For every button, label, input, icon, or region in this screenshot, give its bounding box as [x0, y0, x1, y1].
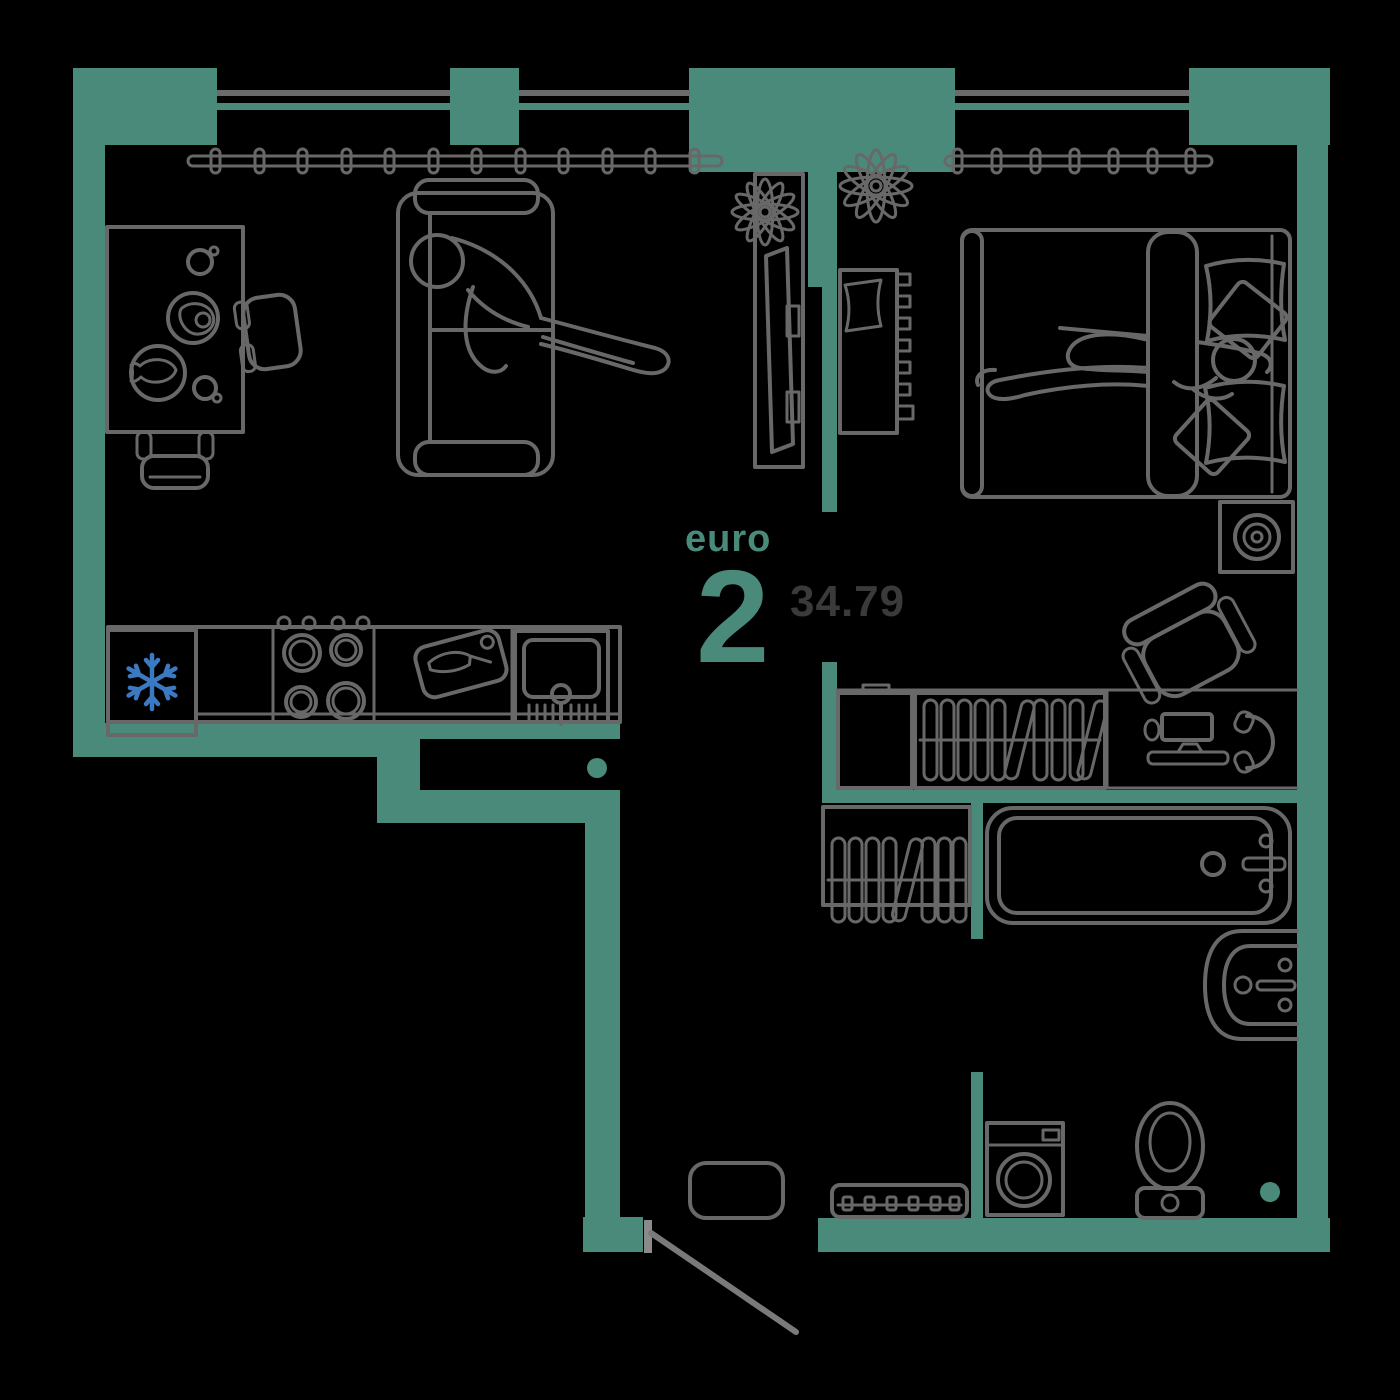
headphones-icon — [1233, 710, 1273, 775]
headboard — [962, 231, 982, 496]
kitchen — [108, 617, 620, 735]
pillow-icon — [1207, 279, 1289, 360]
book-icon — [845, 280, 881, 331]
snowflake-icon — [126, 655, 179, 709]
bedroom — [837, 150, 1297, 788]
plate-icon — [131, 346, 185, 400]
stove-icon — [278, 617, 369, 719]
toilet-icon — [1137, 1103, 1203, 1218]
drain-icon — [1235, 977, 1251, 993]
person-icon — [977, 328, 1271, 399]
shoe-bench-icon — [832, 1185, 967, 1217]
bathtub-icon — [987, 808, 1290, 923]
rug-icon — [690, 1163, 783, 1218]
washing-machine-icon — [987, 1123, 1063, 1215]
window — [955, 90, 1189, 96]
curtain-rod-living — [188, 149, 722, 173]
plan-labels: euro 2 34.79 — [685, 518, 905, 690]
plant-icon — [732, 179, 798, 245]
knife-icon — [427, 643, 490, 677]
closet-icon — [838, 685, 912, 788]
window-frame — [217, 103, 450, 110]
radiator-shelf-icon — [840, 270, 913, 433]
drain-icon — [1202, 853, 1224, 875]
curtain-hooks — [953, 149, 1195, 173]
shaft-column-dot — [587, 758, 607, 778]
pillow-icon — [1172, 397, 1251, 476]
window-frame — [519, 103, 690, 110]
cutting-board-icon — [413, 627, 510, 699]
faucet-icon — [1243, 858, 1285, 870]
faucet-icon — [552, 685, 570, 703]
curtain-rod-bedroom — [945, 149, 1212, 173]
dining-table-icon — [107, 227, 243, 432]
window-frame — [955, 103, 1189, 110]
chair-icon — [137, 432, 213, 488]
washbasin-icon — [1205, 931, 1297, 1039]
floor-plan: euro 2 34.79 — [0, 0, 1400, 1400]
person-icon — [411, 235, 669, 373]
mouse-icon — [1145, 720, 1159, 740]
curtain-hooks — [211, 149, 699, 173]
entrance-door-swing — [644, 1220, 796, 1332]
wardrobe-hangers-icon — [915, 693, 1108, 788]
plan-area-value: 34.79 — [790, 577, 905, 626]
faucet-icon — [1257, 981, 1295, 990]
bathroom — [823, 807, 1297, 1218]
floor-plan-page: euro 2 34.79 — [0, 0, 1400, 1400]
desk-monitor-icon — [1145, 710, 1273, 775]
window — [217, 90, 450, 96]
window — [519, 90, 690, 96]
monitor-icon — [1162, 714, 1212, 740]
drying-rack-icon — [823, 807, 970, 922]
living-room — [107, 174, 803, 488]
keyboard-icon — [1148, 752, 1228, 764]
nightstand-lamp-icon — [1220, 502, 1293, 572]
bed-icon — [962, 230, 1290, 497]
kitchen-sink-icon — [515, 631, 608, 724]
cup-icon — [188, 250, 212, 274]
plan-rooms-count: 2 — [696, 543, 769, 690]
riser-column-dot — [1260, 1182, 1280, 1202]
